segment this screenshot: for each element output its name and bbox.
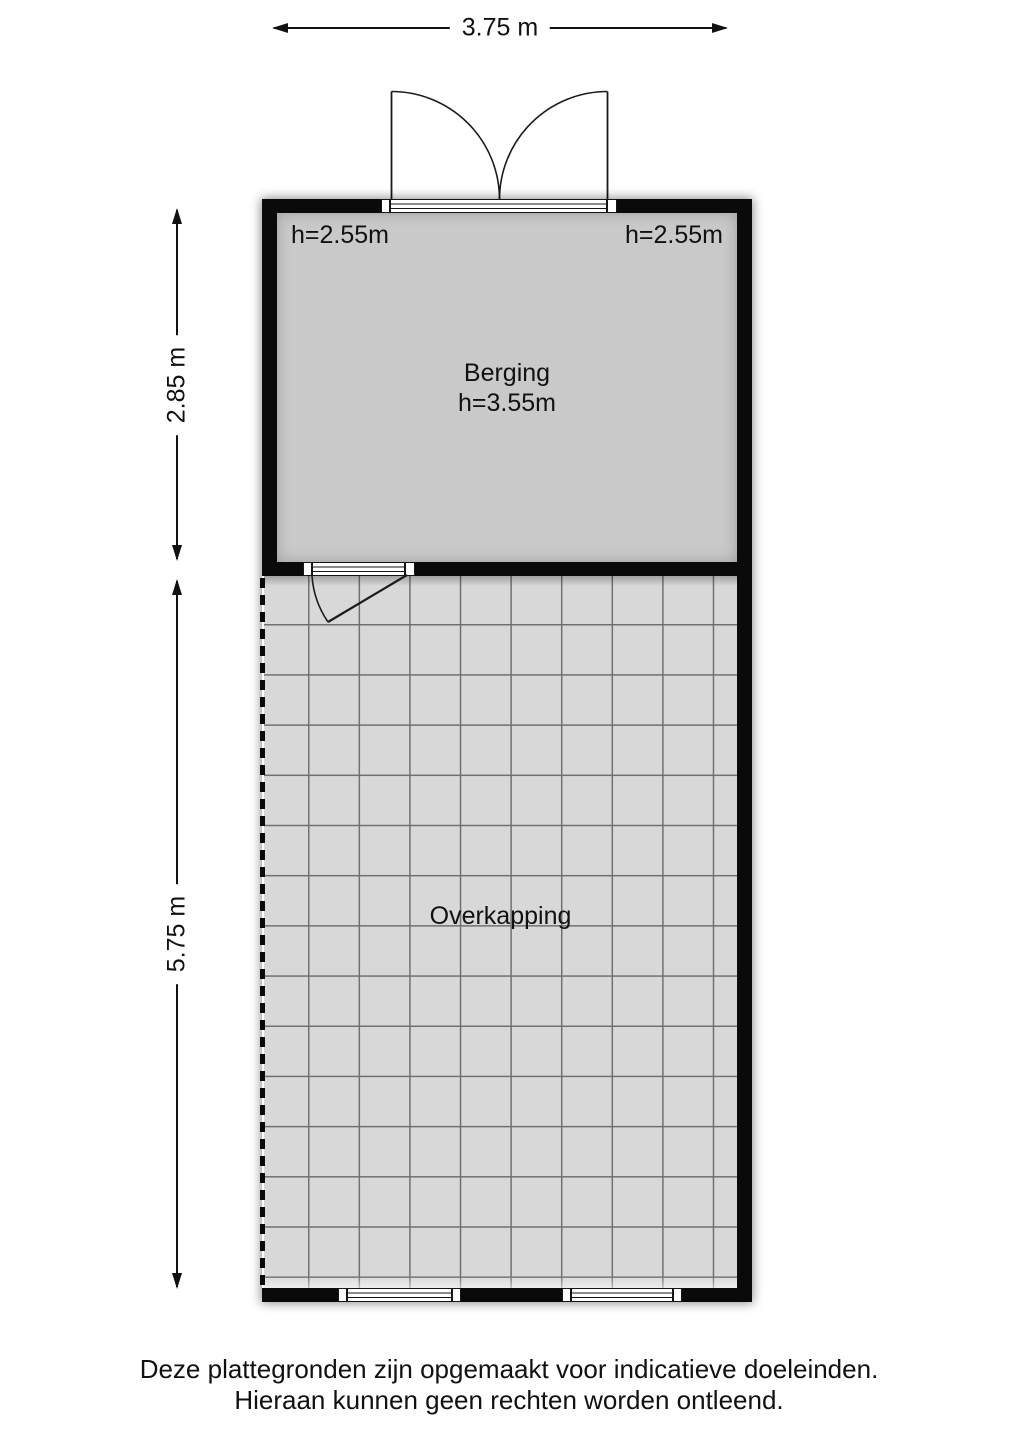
open-edge-dashed-line xyxy=(260,578,265,1286)
overkapping-room-name: Overkapping xyxy=(264,902,737,931)
berging-room-name: Berging xyxy=(464,358,550,388)
floor-plan-page: 3.75 m 2.85 m 5.75 m h=2.55m h=2.55m Ber… xyxy=(0,0,1018,1440)
wall-right xyxy=(737,576,752,1302)
single-door-icon xyxy=(300,570,420,630)
berging-height-dimension: 2.85 m xyxy=(176,210,178,559)
overkapping-height-dimension-label: 5.75 m xyxy=(163,884,192,984)
window xyxy=(347,1288,452,1302)
disclaimer: Deze plattegronden zijn opgemaakt voor i… xyxy=(0,1354,1018,1416)
overkapping-room: Overkapping xyxy=(264,576,737,1288)
arrowhead-down-icon xyxy=(172,545,182,561)
arrowhead-down-icon xyxy=(172,1273,182,1289)
width-dimension-label: 3.75 m xyxy=(450,14,550,43)
berging-label-group: Berging h=3.55m xyxy=(277,213,737,562)
double-door-icon xyxy=(380,87,620,200)
arrowhead-up-icon xyxy=(172,208,182,224)
berging-height-dimension-label: 2.85 m xyxy=(163,334,192,434)
arrowhead-left-icon xyxy=(272,23,288,33)
door-jamb xyxy=(381,199,390,213)
wall-bottom xyxy=(262,1288,752,1302)
width-dimension: 3.75 m xyxy=(274,27,726,29)
arrowhead-up-icon xyxy=(172,579,182,595)
disclaimer-line-1: Deze plattegronden zijn opgemaakt voor i… xyxy=(0,1354,1018,1385)
window-jamb xyxy=(673,1288,682,1302)
door-threshold xyxy=(390,199,607,213)
window-jamb xyxy=(562,1288,571,1302)
door-jamb xyxy=(607,199,617,213)
berging-floor: h=2.55m h=2.55m Berging h=3.55m xyxy=(277,213,737,562)
window xyxy=(571,1288,673,1302)
floor-plan: h=2.55m h=2.55m Berging h=3.55m Overkapp… xyxy=(262,199,752,1302)
berging-room: h=2.55m h=2.55m Berging h=3.55m xyxy=(262,199,752,576)
overkapping-height-dimension: 5.75 m xyxy=(176,581,178,1287)
disclaimer-line-2: Hieraan kunnen geen rechten worden ontle… xyxy=(0,1385,1018,1416)
window-jamb xyxy=(338,1288,347,1302)
window-jamb xyxy=(452,1288,461,1302)
arrowhead-right-icon xyxy=(712,23,728,33)
berging-ceiling-height: h=3.55m xyxy=(458,388,556,418)
